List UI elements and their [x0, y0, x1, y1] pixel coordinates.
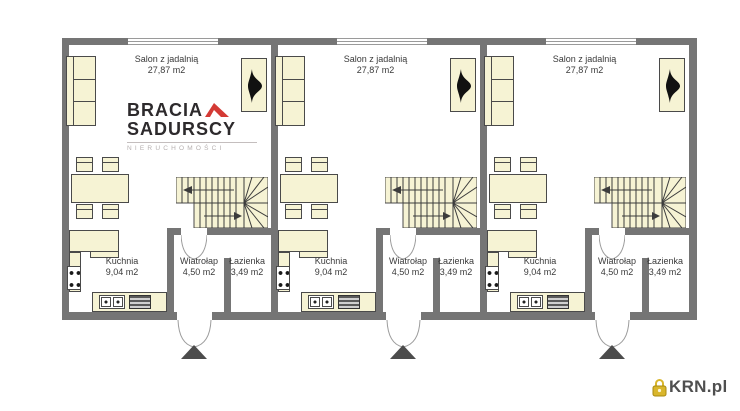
entrance-door	[386, 320, 421, 348]
sink-basin	[322, 297, 332, 307]
wall-hall-top-right	[207, 228, 271, 235]
staircase	[594, 177, 686, 228]
sink	[308, 295, 334, 309]
entrance-opening	[386, 312, 421, 320]
room-area: 4,50 m2	[183, 267, 216, 277]
room-name: Łazienka	[438, 256, 474, 266]
sink-basin	[531, 297, 541, 307]
room-label-kuchnia: Kuchnia 9,04 m2	[492, 256, 588, 278]
room-name: Kuchnia	[315, 256, 348, 266]
room-area: 3,49 m2	[231, 267, 264, 277]
staircase	[176, 177, 268, 228]
chair	[285, 204, 302, 219]
wall-right	[689, 38, 697, 320]
room-name: Kuchnia	[524, 256, 557, 266]
sink	[517, 295, 543, 309]
padlock-icon	[652, 378, 667, 397]
room-area: 3,49 m2	[649, 267, 682, 277]
dishwasher	[338, 295, 360, 309]
agency-watermark: BRACIA SADURSCY NIERUCHOMOŚCI	[127, 101, 257, 152]
room-label-kuchnia: Kuchnia 9,04 m2	[283, 256, 379, 278]
sink-basin	[101, 297, 111, 307]
wall-bottom	[62, 312, 271, 320]
entrance-arrow-icon	[599, 345, 625, 359]
kitchen-counter	[69, 230, 119, 252]
window	[128, 38, 218, 45]
chair	[494, 157, 511, 172]
wall-hall-top-left	[167, 228, 181, 235]
room-area: 4,50 m2	[601, 267, 634, 277]
dining-table	[489, 174, 547, 203]
entrance-opening	[595, 312, 630, 320]
room-label-lazienka: Łazienka 3,49 m2	[638, 256, 692, 278]
room-name: Wiatrołap	[598, 256, 636, 266]
chair	[76, 204, 93, 219]
entrance-opening	[177, 312, 212, 320]
entrance-door	[177, 320, 212, 348]
chair	[76, 157, 93, 172]
room-name: Łazienka	[647, 256, 683, 266]
agency-name-line1: BRACIA	[127, 101, 257, 120]
sink-basin	[113, 297, 123, 307]
brand-text: SADURSCY	[127, 120, 236, 139]
room-name: Łazienka	[229, 256, 265, 266]
chair	[311, 157, 328, 172]
room-area: 27,87 m2	[566, 65, 604, 75]
wall-bottom	[271, 312, 480, 320]
staircase	[385, 177, 477, 228]
sink	[99, 295, 125, 309]
room-area: 27,87 m2	[148, 65, 186, 75]
window	[337, 38, 427, 45]
chair	[520, 204, 537, 219]
room-label-lazienka: Łazienka 3,49 m2	[220, 256, 274, 278]
apartment-unit: Salon z jadalnią 27,87 m2 Kuchnia 9,04 m…	[62, 38, 271, 320]
room-area: 4,50 m2	[392, 267, 425, 277]
wall-bottom	[480, 312, 689, 320]
room-label-salon: Salon z jadalnią 27,87 m2	[480, 54, 689, 76]
wall-hall-top-left	[585, 228, 599, 235]
roof-icon	[205, 102, 230, 118]
kitchen-counter	[278, 230, 328, 252]
chair	[285, 157, 302, 172]
room-area: 3,49 m2	[440, 267, 473, 277]
agency-tagline: NIERUCHOMOŚCI	[127, 142, 257, 152]
apartment-unit: Salon z jadalnią 27,87 m2 Kuchnia 9,04 m…	[480, 38, 689, 320]
chair	[494, 204, 511, 219]
dishwasher	[129, 295, 151, 309]
wall-hall-top-right	[625, 228, 689, 235]
room-name: Salon z jadalnią	[553, 54, 617, 64]
entrance-door	[595, 320, 630, 348]
brand-text: BRACIA	[127, 101, 203, 120]
room-name: Salon z jadalnią	[135, 54, 199, 64]
room-name: Salon z jadalnią	[344, 54, 408, 64]
apartment-unit: Salon z jadalnią 27,87 m2 Kuchnia 9,04 m…	[271, 38, 480, 320]
chair	[520, 157, 537, 172]
room-area: 9,04 m2	[524, 267, 557, 277]
room-label-salon: Salon z jadalnią 27,87 m2	[271, 54, 480, 76]
entrance-arrow-icon	[390, 345, 416, 359]
chair	[102, 157, 119, 172]
krn-logo[interactable]: KRN.pl	[652, 377, 727, 397]
krn-logo-text: KRN.pl	[669, 377, 727, 397]
chair	[311, 204, 328, 219]
sink-basin	[310, 297, 320, 307]
sink-basin	[519, 297, 529, 307]
window	[546, 38, 636, 45]
room-label-kuchnia: Kuchnia 9,04 m2	[74, 256, 170, 278]
room-area: 9,04 m2	[315, 267, 348, 277]
floor-plan: Salon z jadalnią 27,87 m2 Kuchnia 9,04 m…	[0, 0, 740, 411]
wall-hall-top-left	[376, 228, 390, 235]
dishwasher	[547, 295, 569, 309]
entrance-arrow-icon	[181, 345, 207, 359]
chair	[102, 204, 119, 219]
room-label-salon: Salon z jadalnią 27,87 m2	[62, 54, 271, 76]
room-area: 9,04 m2	[106, 267, 139, 277]
agency-name-line2: SADURSCY	[127, 120, 257, 139]
dining-table	[280, 174, 338, 203]
room-area: 27,87 m2	[357, 65, 395, 75]
room-name: Wiatrołap	[180, 256, 218, 266]
room-name: Wiatrołap	[389, 256, 427, 266]
kitchen-counter	[487, 230, 537, 252]
wall-hall-top-right	[416, 228, 480, 235]
room-name: Kuchnia	[106, 256, 139, 266]
dining-table	[71, 174, 129, 203]
room-label-lazienka: Łazienka 3,49 m2	[429, 256, 483, 278]
